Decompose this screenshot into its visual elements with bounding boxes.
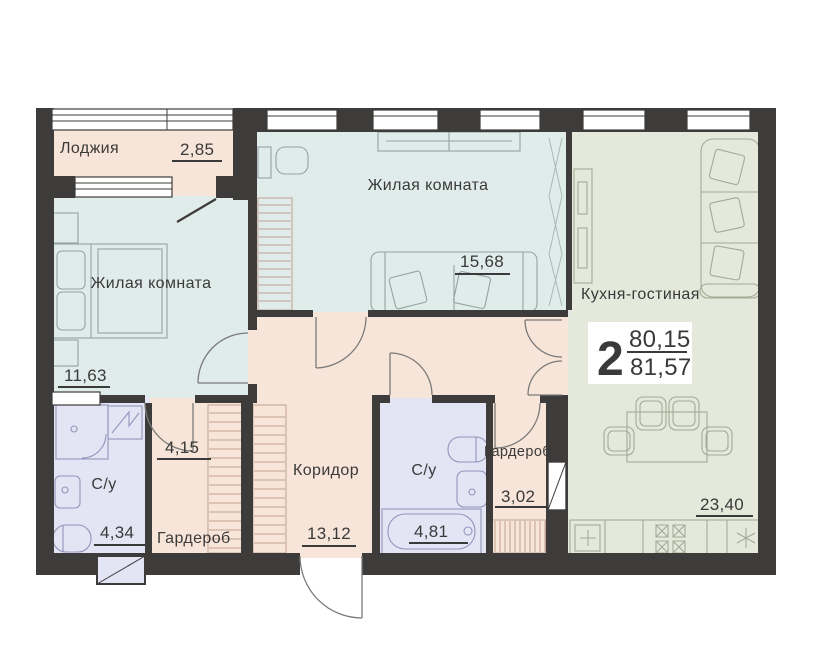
area-wardrobe-2: 3,02 <box>501 487 535 506</box>
label-wardrobe-2: Гардероб <box>484 444 551 460</box>
label-kitchen: Кухня-гостиная <box>581 286 700 303</box>
wall-bottom-right <box>362 553 776 575</box>
area-loggia: 2,85 <box>180 140 214 159</box>
area-bedroom: 11,63 <box>64 366 107 385</box>
label-bathroom-1: С/у <box>91 476 116 493</box>
wall-corridor-bath2 <box>372 395 380 558</box>
window-5 <box>687 110 750 130</box>
wall-wardrobe1-corridor <box>241 403 253 553</box>
window-1 <box>267 110 337 130</box>
wall-bath2-top-a <box>380 395 390 403</box>
window-loggia-bedroom <box>75 177 172 197</box>
info-badge: 2 80,15 81,57 <box>588 322 692 386</box>
door-entry <box>300 556 362 618</box>
wall-bath2-top-b <box>432 395 495 403</box>
window-4 <box>583 110 645 130</box>
area-bathroom-2: 4,81 <box>414 522 448 541</box>
apartment-floor-plan: Лоджия 2,85 Жилая комната 11,63 Жилая ко… <box>0 0 827 650</box>
wall-living-bottom-b <box>368 310 568 317</box>
wall-living-bottom-a <box>255 310 313 317</box>
label-wardrobe-1: Гардероб <box>157 530 231 547</box>
duct-shaft-kitchen <box>548 462 566 510</box>
wall-bottom-left <box>36 553 300 575</box>
label-living: Жилая комната <box>368 177 489 194</box>
area-bathroom-1: 4,34 <box>100 523 134 542</box>
wall-living-kitchen <box>566 126 572 310</box>
area-corridor: 13,12 <box>307 524 351 543</box>
area-wardrobe-1: 4,15 <box>165 438 199 457</box>
badge-area-lower: 81,57 <box>630 354 692 381</box>
label-corridor: Коридор <box>293 462 359 479</box>
label-bedroom: Жилая комната <box>91 275 212 292</box>
area-living: 15,68 <box>460 252 504 271</box>
loggia-glazing <box>52 109 233 130</box>
duct-shaft-bath <box>97 556 145 584</box>
wall-wardrobe1-top <box>195 395 257 403</box>
sliding-door-bath-1 <box>52 392 100 405</box>
wall-loggia-b <box>216 176 233 198</box>
window-3 <box>480 110 540 130</box>
label-bathroom-2: С/у <box>411 462 436 479</box>
wall-loggia-a <box>54 176 75 198</box>
floor-plan-canvas: Лоджия 2,85 Жилая комната 11,63 Жилая ко… <box>0 0 827 650</box>
label-loggia: Лоджия <box>60 140 119 157</box>
badge-rooms-count: 2 <box>597 333 624 386</box>
window-2 <box>373 110 438 130</box>
wall-column-loggia <box>233 108 257 200</box>
wall-left <box>36 108 54 575</box>
badge-area-upper: 80,15 <box>629 326 691 353</box>
wall-bath2-wardrobe2 <box>486 403 493 553</box>
area-kitchen: 23,40 <box>700 495 744 514</box>
wall-right <box>758 108 776 575</box>
